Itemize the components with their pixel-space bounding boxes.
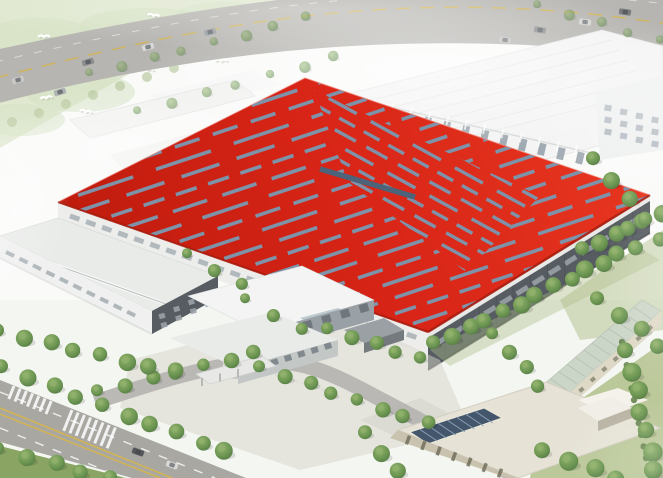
aerial-campus-rendering [0, 0, 663, 478]
rendering-canvas [0, 0, 663, 478]
